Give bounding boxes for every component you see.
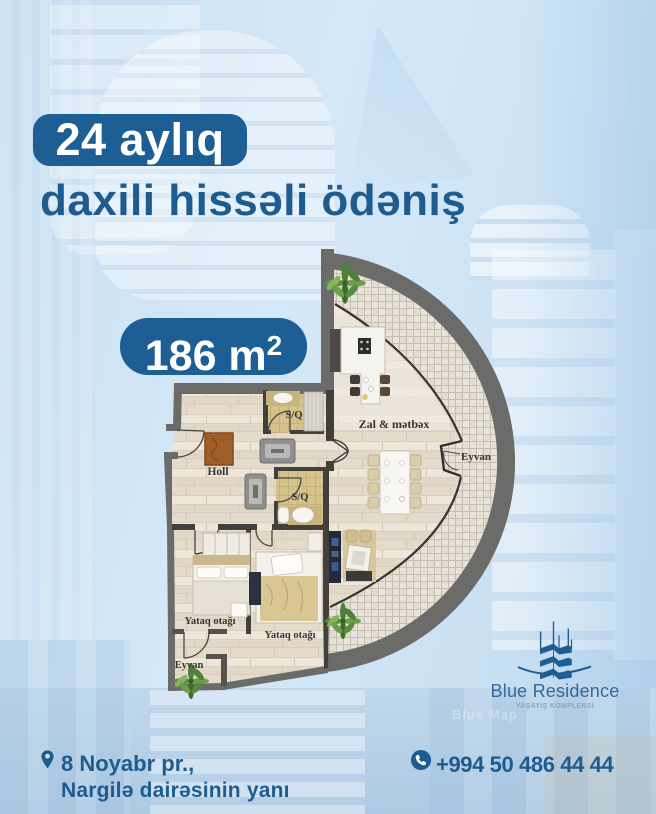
svg-text:Eyvan: Eyvan xyxy=(461,451,491,463)
svg-text:Zal & mətbəx: Zal & mətbəx xyxy=(359,417,430,431)
svg-text:Eyvan: Eyvan xyxy=(175,660,204,671)
svg-text:Yataq otağı: Yataq otağı xyxy=(264,630,315,641)
svg-text:S/Q: S/Q xyxy=(292,492,309,503)
svg-text:S/Q: S/Q xyxy=(286,410,303,421)
svg-text:Holl: Holl xyxy=(207,466,228,478)
svg-text:Yataq otağı: Yataq otağı xyxy=(184,616,235,627)
